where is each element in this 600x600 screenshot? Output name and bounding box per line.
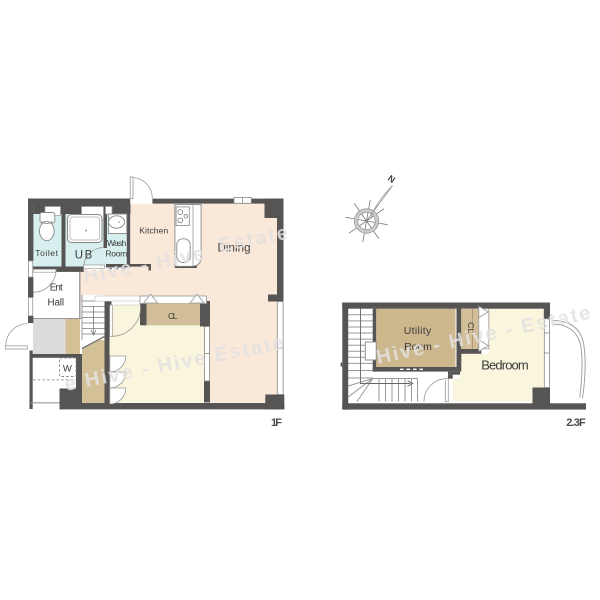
- svg-text:Bedroom: Bedroom: [481, 357, 529, 372]
- svg-text:Kitchen: Kitchen: [139, 225, 168, 235]
- svg-text:N: N: [386, 173, 397, 185]
- svg-text:Wash: Wash: [107, 238, 127, 248]
- svg-text:Room: Room: [105, 249, 127, 259]
- svg-text:Ent: Ent: [50, 282, 63, 293]
- svg-text:Toilet: Toilet: [35, 248, 58, 258]
- svg-text:Hall: Hall: [48, 298, 65, 309]
- svg-text:CL: CL: [168, 311, 178, 321]
- svg-text:UB: UB: [75, 250, 93, 262]
- svg-text:1F: 1F: [271, 417, 282, 429]
- svg-text:2.3F: 2.3F: [566, 417, 586, 429]
